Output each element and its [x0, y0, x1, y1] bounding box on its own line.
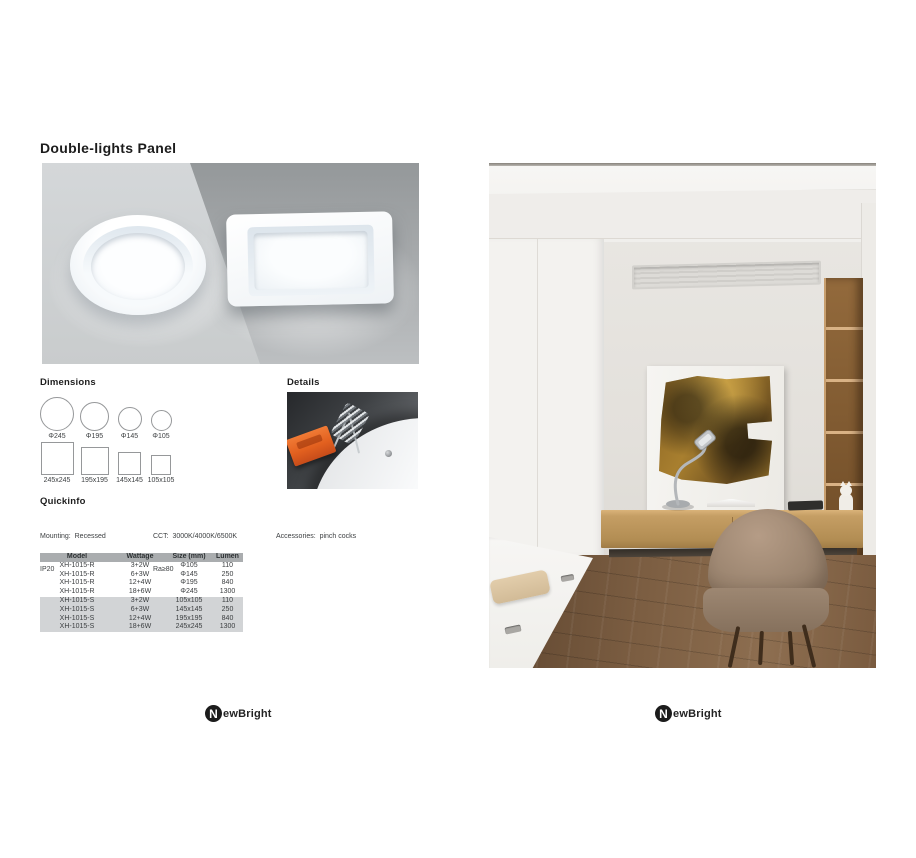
- pinch-clip-notch: [296, 434, 323, 449]
- table-row: XH-1015-S18+6W245x2451300: [40, 623, 243, 632]
- cell-lumen: 110: [212, 562, 243, 571]
- cell-lumen: 840: [212, 615, 243, 624]
- quickinfo-heading: Quickinfo: [40, 496, 86, 507]
- cat: [839, 485, 853, 513]
- dimensions-square-row: 245x245 195x195 145x145 105x105: [38, 441, 176, 484]
- cell-lumen: 250: [212, 571, 243, 580]
- cell-wattage: 18+6W: [114, 623, 166, 632]
- dimension-square-shape: [41, 442, 74, 475]
- newbright-logo-left: N ewBright: [205, 705, 272, 722]
- dimension-label: Φ105: [152, 433, 169, 440]
- square-panel-render: [226, 211, 394, 306]
- cell-model: XH-1015-R: [40, 571, 114, 580]
- newbright-logo-icon: N: [655, 705, 672, 722]
- dimension-label: 245x245: [44, 477, 71, 484]
- photo-ceiling-soffit: [489, 189, 876, 239]
- round-panel-ring: [83, 226, 193, 306]
- dimension-item: Φ145: [113, 395, 146, 440]
- cell-size: 245x245: [166, 623, 212, 632]
- cell-model: XH-1015-R: [40, 562, 114, 571]
- cat-head: [840, 485, 852, 496]
- table-row: XH-1015-R18+6WΦ2451300: [40, 588, 243, 597]
- dimension-circle-shape: [151, 410, 172, 431]
- cell-wattage: 6+3W: [114, 606, 166, 615]
- square-panel-ring: [247, 225, 374, 297]
- dimension-label: Φ195: [86, 433, 103, 440]
- shape-wrap: [80, 395, 109, 431]
- cell-lumen: 250: [212, 606, 243, 615]
- newbright-logo-icon: N: [205, 705, 222, 722]
- dimension-label: Φ145: [121, 433, 138, 440]
- shape-wrap: [151, 395, 172, 431]
- dimension-square-shape: [81, 447, 109, 475]
- dimensions-heading: Dimensions: [40, 377, 96, 388]
- left-cabinet: [489, 239, 604, 555]
- cell-wattage: 6+3W: [114, 571, 166, 580]
- table-row: XH-1015-R3+2WΦ105110: [40, 562, 243, 571]
- catalog-page: Double-lights Panel Dimensions Φ245 Φ195: [0, 0, 916, 858]
- cell-wattage: 3+2W: [114, 562, 166, 571]
- dimension-item: 245x245: [38, 441, 76, 484]
- details-image: [287, 392, 418, 489]
- quickinfo-line: Accessories: pinch cocks: [276, 531, 356, 542]
- ceiling-vent: [632, 261, 821, 290]
- table-row: XH-1015-S6+3W145x145250: [40, 606, 243, 615]
- cell-wattage: 3+2W: [114, 597, 166, 606]
- cell-lumen: 1300: [212, 623, 243, 632]
- shape-wrap: [118, 441, 141, 475]
- cell-size: Φ145: [166, 571, 212, 580]
- spec-table: Model Wattage Size (mm) Lumen XH-1015-R3…: [40, 553, 243, 632]
- cabinet-seam: [537, 239, 538, 555]
- cell-size: 105x105: [166, 597, 212, 606]
- cell-size: Φ245: [166, 588, 212, 597]
- cell-model: XH-1015-S: [40, 606, 114, 615]
- cell-wattage: 18+6W: [114, 588, 166, 597]
- dimensions-round-row: Φ245 Φ195 Φ145 Φ105: [38, 395, 176, 440]
- cell-model: XH-1015-S: [40, 623, 114, 632]
- newbright-logo-right: N ewBright: [655, 705, 722, 722]
- table-row: XH-1015-S12+4W195x195840: [40, 615, 243, 624]
- dimension-square-shape: [151, 455, 171, 475]
- dimension-circle-shape: [118, 407, 142, 431]
- round-panel-render: [70, 215, 206, 315]
- dimension-item: Φ105: [146, 395, 176, 440]
- cell-lumen: 1300: [212, 588, 243, 597]
- dimension-label: 195x195: [81, 477, 108, 484]
- cell-wattage: 12+4W: [114, 615, 166, 624]
- spec-header-size: Size (mm): [166, 553, 212, 562]
- cell-size: 195x195: [166, 615, 212, 624]
- dimension-item: 105x105: [146, 441, 176, 484]
- shape-wrap: [118, 395, 142, 431]
- pinch-clip: [287, 425, 336, 466]
- dimension-item: Φ195: [76, 395, 113, 440]
- shape-wrap: [41, 441, 74, 475]
- dimension-label: 145x145: [116, 477, 143, 484]
- dimension-label: 105x105: [148, 477, 175, 484]
- quickinfo-line: Mounting: Recessed: [40, 531, 131, 542]
- cell-wattage: 12+4W: [114, 579, 166, 588]
- details-heading: Details: [287, 377, 320, 388]
- photo-top-edge: [489, 163, 876, 166]
- dimension-square-shape: [118, 452, 141, 475]
- newbright-logo-text: ewBright: [673, 708, 722, 720]
- quickinfo-line: CCT: 3000K/4000K/6500K: [153, 531, 237, 542]
- application-photo: [489, 163, 876, 668]
- round-panel-lens: [91, 233, 185, 300]
- dark-notebook: [788, 500, 823, 510]
- dimension-item: Φ245: [38, 395, 76, 440]
- cat-ear: [846, 481, 852, 486]
- square-panel-lens: [253, 231, 368, 290]
- table-row: XH-1015-R6+3WΦ145250: [40, 571, 243, 580]
- desk-lamp: [644, 413, 734, 513]
- cell-lumen: 840: [212, 579, 243, 588]
- cell-size: 145x145: [166, 606, 212, 615]
- chair-seat: [703, 588, 829, 632]
- table-row: XH-1015-S3+2W105x105110: [40, 597, 243, 606]
- spec-header-lumen: Lumen: [212, 553, 243, 562]
- dimension-item: 145x145: [113, 441, 146, 484]
- spec-header-model: Model: [40, 553, 114, 562]
- cell-lumen: 110: [212, 597, 243, 606]
- spec-table-header-row: Model Wattage Size (mm) Lumen: [40, 553, 243, 562]
- product-hero-image: [42, 163, 419, 364]
- shape-wrap: [40, 395, 74, 431]
- spec-header-wattage: Wattage: [114, 553, 166, 562]
- shape-wrap: [81, 441, 109, 475]
- quickinfo-column-right: Accessories: pinch cocks: [276, 509, 356, 564]
- cell-size: Φ105: [166, 562, 212, 571]
- newbright-logo-text: ewBright: [223, 708, 272, 720]
- cell-model: XH-1015-S: [40, 615, 114, 624]
- page-title: Double-lights Panel: [40, 140, 176, 156]
- cell-model: XH-1015-R: [40, 579, 114, 588]
- cell-model: XH-1015-R: [40, 588, 114, 597]
- dimension-circle-shape: [40, 397, 74, 431]
- table-row: XH-1015-R12+4WΦ195840: [40, 579, 243, 588]
- dimension-circle-shape: [80, 402, 109, 431]
- cell-size: Φ195: [166, 579, 212, 588]
- cell-model: XH-1015-S: [40, 597, 114, 606]
- dimension-item: 195x195: [76, 441, 113, 484]
- shape-wrap: [151, 441, 171, 475]
- screw: [385, 450, 392, 457]
- dimension-label: Φ245: [48, 433, 65, 440]
